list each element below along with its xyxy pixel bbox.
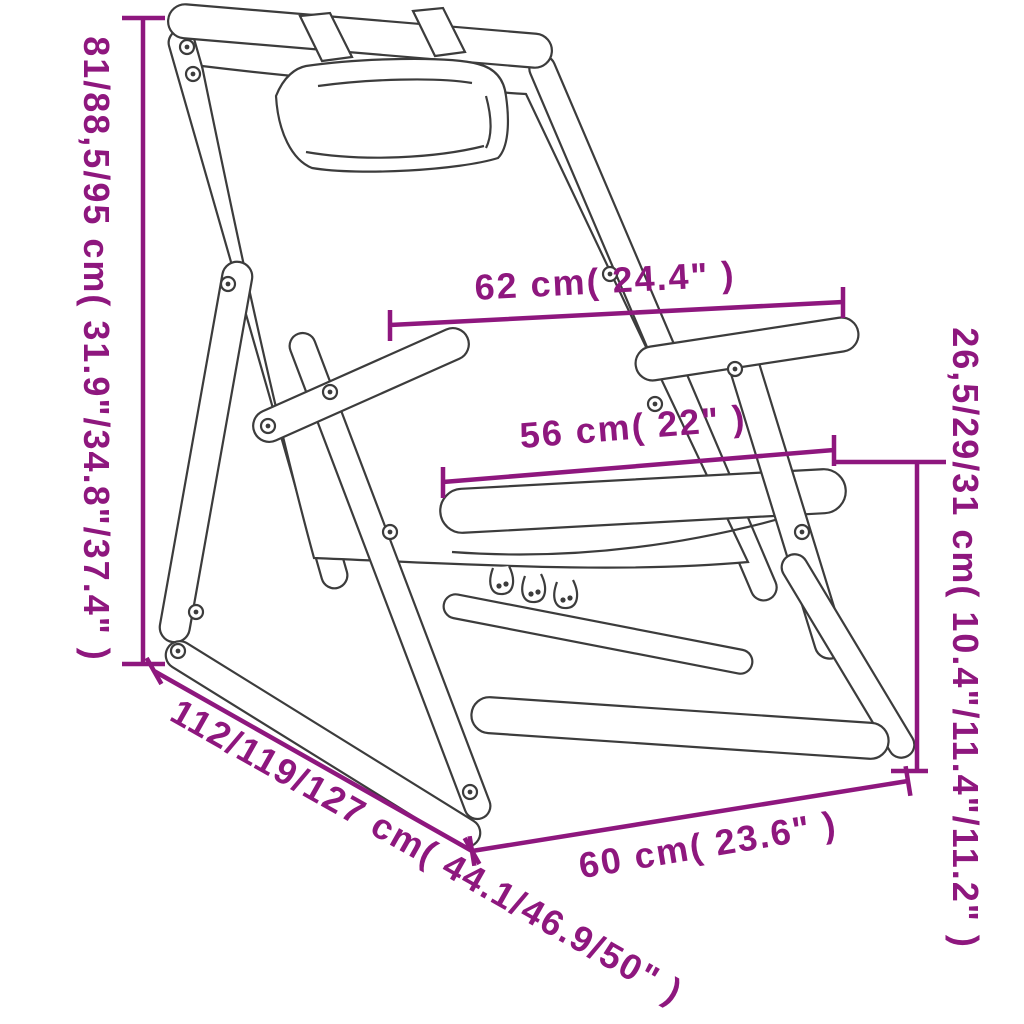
top-crossbar <box>167 3 553 69</box>
headrest-pillow <box>276 59 508 172</box>
product-dimension-diagram: 81/88,5/95 cm( 31.9"/34.8"/37.4" ) 62 cm… <box>0 0 1024 1024</box>
seat-strap-loop <box>490 566 513 594</box>
diagram-canvas <box>0 0 1024 1024</box>
back-height-dimension-label: 81/88,5/95 cm( 31.9"/34.8"/37.4" ) <box>75 36 117 662</box>
seat-adjust-rail <box>442 592 755 675</box>
back-height-dimension-line <box>122 18 165 664</box>
stand-leg-left <box>157 259 254 644</box>
seat-strap-loop <box>522 574 545 602</box>
seat-height-dimension-label: 26,5/29/31 cm( 10.4"/11.4"/11.2" ) <box>944 327 986 949</box>
bottom-crossbar <box>470 696 889 760</box>
seat-strap-loop <box>554 580 577 608</box>
